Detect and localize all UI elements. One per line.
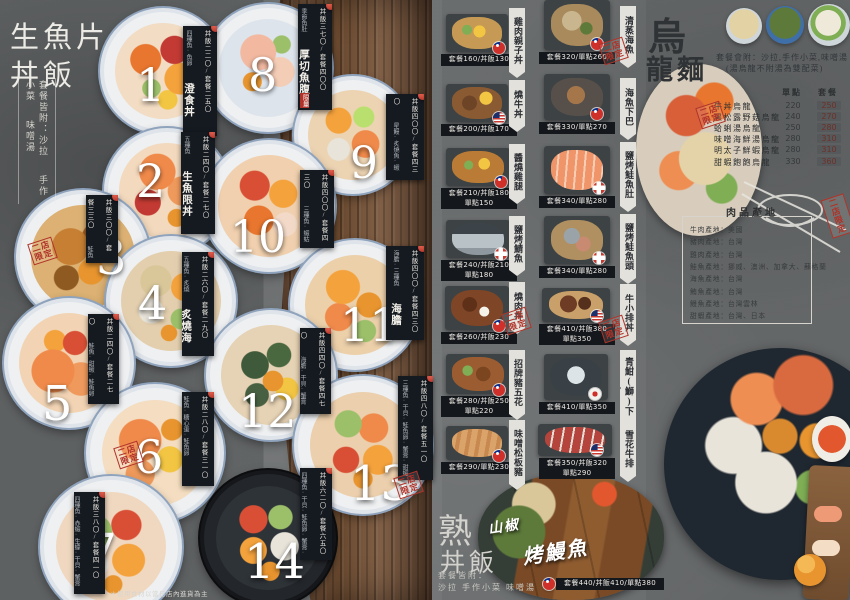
- dish-price: 丼飯四八〇/套餐五一〇: [419, 380, 426, 463]
- taiwan-flag-icon: [543, 578, 555, 590]
- udon-single-price: 250: [782, 123, 804, 132]
- dish-label-12: 丼飯四四〇/套餐四七〇 海膽·干貝·蟹膏·鮭魚卵 海膽干貝蟹膏丼: [300, 328, 331, 414]
- price-bar: 套餐280/丼飯250單點220: [441, 396, 517, 417]
- stamp-text: 限定: [829, 213, 850, 236]
- norway-flag-icon: [495, 248, 507, 260]
- dish-label-7: 丼飯三八〇/套餐四一〇 四種魚·赤蝦·生蠔·干貝·蟹膏 大澄食丼: [74, 492, 105, 594]
- footnote: ＊使用食材以當日店內進貨為主: [110, 588, 208, 598]
- origin-line: 甜蝦產地：台灣、日本: [690, 310, 766, 320]
- item-number-14: 14: [244, 538, 305, 586]
- origin-line: 豬肉產地：台灣: [690, 236, 743, 246]
- dish-label-14: 丼飯六二〇/套餐六五〇 四種魚·干貝·鮭魚卵·蟹膏·牡丹蝦·海膽·雙生蠔 大人物…: [300, 468, 332, 560]
- price-line: 單點290: [563, 469, 592, 477]
- dish-label-8: 丼飯三七〇/套餐四〇〇 季節魚肚 厚切魚腹丼 限量: [298, 4, 332, 110]
- udon-set-note2: (湯烏龍不附湯為雙配菜): [726, 63, 823, 74]
- norway-flag-icon: [593, 252, 605, 264]
- dish-tag: 醬燒雞腿: [509, 144, 525, 204]
- dish-name: 海魚下巴: [624, 88, 634, 126]
- limited-quantity-badge: 限量: [300, 93, 309, 108]
- norway-flag-icon: [593, 182, 605, 194]
- ribbon-icon: [418, 94, 424, 100]
- dish-price: 丼飯四〇〇/套餐四三〇: [410, 250, 417, 333]
- dish-note: 三種魚·干貝·鮭魚卵·蟹膏·甜蝦·海膽: [398, 380, 407, 476]
- dish-label-1: 丼飯二二〇/套餐二五〇 四種魚·魚卵 澄食丼: [183, 26, 217, 136]
- set-note-line: 味噌湯: [25, 120, 35, 153]
- nigiri-photo: [812, 540, 840, 556]
- dish-note: 四種魚·魚卵: [185, 30, 191, 66]
- ribbon-icon: [211, 26, 217, 32]
- item-number-5: 5: [42, 380, 73, 428]
- dish-price: 丼飯三七〇/套餐四〇〇: [318, 8, 325, 91]
- dish-note: 四種魚·赤蝦·生蠔·干貝·蟹膏: [74, 496, 79, 586]
- item-number-10: 10: [230, 216, 286, 260]
- usa-flag-icon: [493, 112, 505, 124]
- udon-row-name: 蛤蜊湯烏龍: [714, 123, 762, 134]
- dish-label-3: 丼飯三〇〇/套餐三三〇 鮭魚六片 焦糖鮭丼: [86, 195, 118, 263]
- udon-row-name: 甜蝦飽飽烏龍: [714, 157, 771, 168]
- ribbon-icon: [328, 170, 334, 176]
- udon-single-price: 240: [782, 112, 804, 121]
- japan-flag-icon: [589, 388, 601, 400]
- roe-dish-photo: [812, 416, 850, 462]
- price-line: 套餐320/單點260: [547, 53, 607, 61]
- dish-tag: 鹽烤鮭魚頭: [620, 214, 636, 284]
- dish-note: 海膽·干貝·蟹膏·鮭魚卵: [300, 332, 305, 405]
- udon-row-name: 味噌海鮮湯烏龍: [714, 134, 781, 145]
- udon-row-name: 明太子鮮蝦烏龍: [714, 145, 781, 156]
- dish-tag: 海魚下巴: [620, 78, 636, 140]
- usa-flag-icon: [591, 444, 603, 456]
- price-line: 套餐340/單點280: [547, 197, 607, 205]
- price-bar: 套餐290/單點230: [441, 462, 517, 474]
- price-line: 單點150: [465, 199, 494, 207]
- dish-price: 丼飯三〇〇/套餐三三〇: [86, 199, 111, 252]
- price-line: 套餐200/丼飯170: [449, 125, 509, 133]
- dish-price: 丼飯二八〇/套餐三一〇: [200, 396, 207, 479]
- dish-label-9: 丼飯四〇〇/套餐四三〇 星鰻·炙燒魚·蝦卵·鮭魚卵 融化丼: [386, 94, 424, 180]
- taiwan-flag-icon: [493, 384, 505, 396]
- eel-price-bar: 套餐440/丼飯410/單點380: [556, 578, 664, 590]
- dish-note: 五種魚·炙燒: [182, 256, 188, 292]
- item-number-9: 9: [350, 142, 378, 186]
- price-line: 套餐280/丼飯250: [449, 397, 509, 405]
- price-line: 單點180: [465, 271, 494, 279]
- item-number-4: 4: [138, 280, 167, 326]
- dish-tag: 鹽烤鯖魚: [509, 216, 525, 276]
- taiwan-flag-icon: [493, 450, 505, 462]
- price-line: 套餐160/丼飯130: [449, 55, 509, 63]
- dish-label-5: 丼飯二四〇/套餐二七〇 鮭魚·甜蝦·鮭魚卵·蝦卵 雙鮭丼: [88, 314, 119, 404]
- dish-note: 季節魚肚: [300, 8, 306, 32]
- dish-tag: 味噌松板豬: [509, 420, 525, 490]
- dish-name: 鹽烤鮭魚頭: [624, 223, 634, 271]
- dish-tag: 鹽烤鮭魚肚: [620, 142, 636, 212]
- dish-note: 星鰻·炙燒魚·蝦卵·鮭魚卵: [386, 98, 398, 171]
- dish-label-6: 丼飯二八〇/套餐三一〇 鮭魚·糖心蛋·鮭魚卵 鮭親子丼: [182, 392, 214, 486]
- price-bar: 套餐160/丼飯130: [441, 54, 517, 66]
- price-line: 套餐260/丼飯230: [449, 333, 509, 341]
- price-bar: 套餐260/丼飯230: [441, 332, 517, 344]
- dish-label-13: 丼飯四八〇/套餐五一〇 三種魚·干貝·鮭魚卵·蟹膏·甜蝦·海膽 海神丼: [398, 376, 433, 480]
- price-line: 套餐410/單點350: [547, 403, 607, 411]
- udon-set-price: 280: [817, 123, 841, 132]
- ribbon-icon: [325, 328, 331, 334]
- udon-set-price: 250: [817, 101, 841, 110]
- price-line: 套餐440/丼飯410/單點380: [564, 579, 656, 587]
- ribbon-icon: [427, 376, 433, 382]
- dish-price: 丼飯二六〇/套餐二九〇: [200, 256, 207, 339]
- dish-name: 雞肉親子丼: [513, 17, 523, 65]
- ribbon-icon: [418, 246, 424, 252]
- item-number-8: 8: [248, 52, 277, 98]
- udon-single-price: 280: [782, 134, 804, 143]
- dish-label-11: 丼飯四〇〇/套餐四三〇 海膽·三種魚 海膽三色丼: [386, 246, 424, 340]
- dish-label-2: 丼飯二四〇/套餐二七〇 五種魚 生魚限丼: [181, 132, 215, 234]
- price-line: 單點220: [465, 407, 494, 415]
- price-line: 套餐240/丼飯210: [449, 261, 509, 269]
- kumquat-photo: [794, 554, 826, 586]
- price-bar: 套餐410/單點350: [539, 402, 615, 414]
- udon-single-price: 220: [782, 101, 804, 110]
- dish-note: 鮭魚·甜蝦·鮭魚卵·蝦卵: [88, 318, 93, 397]
- udon-set-note: 套餐會附：沙拉,手作小菜,味噌湯: [716, 52, 848, 63]
- taiwan-flag-icon: [493, 42, 505, 54]
- dish-name: 鹽烤鯖魚: [513, 225, 523, 263]
- dish-name: 招牌豬五花: [513, 359, 523, 407]
- price-bar: 套餐340/單點280: [539, 196, 615, 208]
- dish-price: 丼飯六二〇/套餐六五〇: [318, 472, 325, 555]
- item-number-1: 1: [136, 62, 165, 108]
- price-bar: 套餐350/丼飯320單點290: [539, 458, 615, 479]
- udon-set-price: 310: [817, 134, 841, 143]
- dish-price: 丼飯二四〇/套餐二七〇: [201, 136, 208, 219]
- dish-note: 鮭魚·糖心蛋·鮭魚卵: [182, 396, 188, 456]
- ribbon-icon: [326, 468, 332, 474]
- side-dish-photo: [808, 4, 850, 46]
- price-line: 單點350: [563, 335, 592, 343]
- dish-name: 青魽(鰤)下巴: [620, 357, 634, 416]
- dish-name: 澄食丼: [183, 83, 194, 118]
- column-header-single: 單點: [782, 87, 802, 98]
- dish-tag: 青魽(鰤)下巴: [620, 350, 636, 426]
- side-dish-photo: [766, 6, 804, 44]
- origin-line: 鮪魚產地：台灣: [690, 286, 743, 296]
- origin-line: 海魚產地：台灣: [690, 273, 743, 283]
- dish-note: 海膽·三種魚: [392, 250, 398, 286]
- price-bar: 套餐330/單點270: [539, 122, 615, 134]
- price-bar: 套餐240/丼飯210單點180: [441, 260, 517, 281]
- meat-origin-title: 肉品產地: [726, 204, 778, 219]
- origin-line: 牛肉產地：美國: [690, 224, 743, 234]
- ribbon-icon: [209, 132, 215, 138]
- item-number-2: 2: [136, 158, 165, 204]
- price-bar: 套餐200/丼飯170: [441, 124, 517, 136]
- dish-name: 雪花牛排: [624, 430, 634, 468]
- ribbon-icon: [208, 392, 214, 398]
- dish-price: 丼飯三八〇/套餐四一〇: [91, 496, 98, 579]
- taiwan-flag-icon: [495, 176, 507, 188]
- dish-name: 醬燒雞腿: [513, 153, 523, 191]
- ribbon-icon: [99, 492, 105, 498]
- price-line: 套餐330/單點270: [547, 123, 607, 131]
- dish-name: 味噌松板豬: [513, 429, 523, 477]
- ribbon-icon: [326, 4, 332, 10]
- dish-tag: 雞肉親子丼: [509, 8, 525, 78]
- dish-note: 五種魚: [183, 136, 189, 154]
- cooked-set-note2: 沙拉 手作小菜 味噌湯: [438, 582, 536, 593]
- price-bar: 套餐210/丼飯180單點150: [441, 188, 517, 209]
- udon-set-price: 360: [817, 157, 841, 166]
- udon-set-price: 310: [817, 145, 841, 154]
- dish-tag: 雪花牛排: [620, 420, 636, 482]
- ribbon-icon: [113, 314, 119, 320]
- udon-single-price: 280: [782, 145, 804, 154]
- nigiri-photo: [814, 506, 842, 522]
- udon-set-price: 270: [817, 112, 841, 121]
- dish-price: 丼飯二二〇/套餐二五〇: [203, 30, 210, 113]
- set-note-line: 套餐皆附：沙拉: [38, 80, 48, 157]
- dish-note: 四種魚·干貝·鮭魚卵·蟹膏·牡丹蝦·海膽·雙生蠔: [300, 472, 306, 556]
- dish-name: 燒牛丼: [513, 90, 523, 119]
- ribbon-icon: [112, 195, 118, 201]
- dish-name: 鹽烤鮭魚肚: [624, 151, 634, 199]
- item-number-12: 12: [238, 388, 297, 434]
- sashimi-set-note: 套餐皆附：沙拉 手作小菜 味噌湯: [18, 78, 56, 204]
- price-line: 套餐210/丼飯180: [449, 189, 509, 197]
- dish-tag: 招牌豬五花: [509, 350, 525, 420]
- dish-label-10: 丼飯四〇〇/套餐四三〇 三種魚·蝦蛄·甜蝦 蝦蛄丼: [300, 170, 334, 248]
- price-line: 套餐290/單點230: [449, 463, 509, 471]
- cooked-set-note1: 套餐皆附：: [438, 570, 488, 581]
- origin-line: 鰻魚產地：台灣雲林: [690, 298, 758, 308]
- dish-name: 生魚限丼: [181, 171, 192, 217]
- column-header-set: 套餐: [818, 87, 838, 98]
- taiwan-flag-icon: [591, 108, 603, 120]
- dish-label-4: 丼飯二六〇/套餐二九〇 五種魚·炙燒 炙燒海人丼: [182, 252, 214, 356]
- udon-title-line2: 龍麵: [646, 48, 708, 87]
- origin-line: 鮭魚產地：挪威、澳洲、加拿大、蘇格蘭: [690, 261, 827, 271]
- price-line: 套餐340/單點280: [547, 267, 607, 275]
- price-line: 套餐410/丼飯380: [547, 325, 607, 333]
- menu-poster: 生魚片 丼飯 套餐皆附：沙拉 手作小菜 味噌湯 ＊使用食材以當日店內進貨為主 1…: [0, 0, 850, 600]
- side-dish-photo: [726, 8, 762, 44]
- origin-line: 雞肉產地：台灣: [690, 249, 743, 259]
- sashimi-title-line1: 生魚片: [10, 14, 109, 56]
- udon-single-price: 330: [782, 157, 804, 166]
- dish-tag: 燒牛丼: [509, 80, 525, 132]
- price-line: 套餐350/丼飯320: [547, 459, 607, 467]
- ribbon-icon: [208, 252, 214, 258]
- price-bar: 套餐340/單點280: [539, 266, 615, 278]
